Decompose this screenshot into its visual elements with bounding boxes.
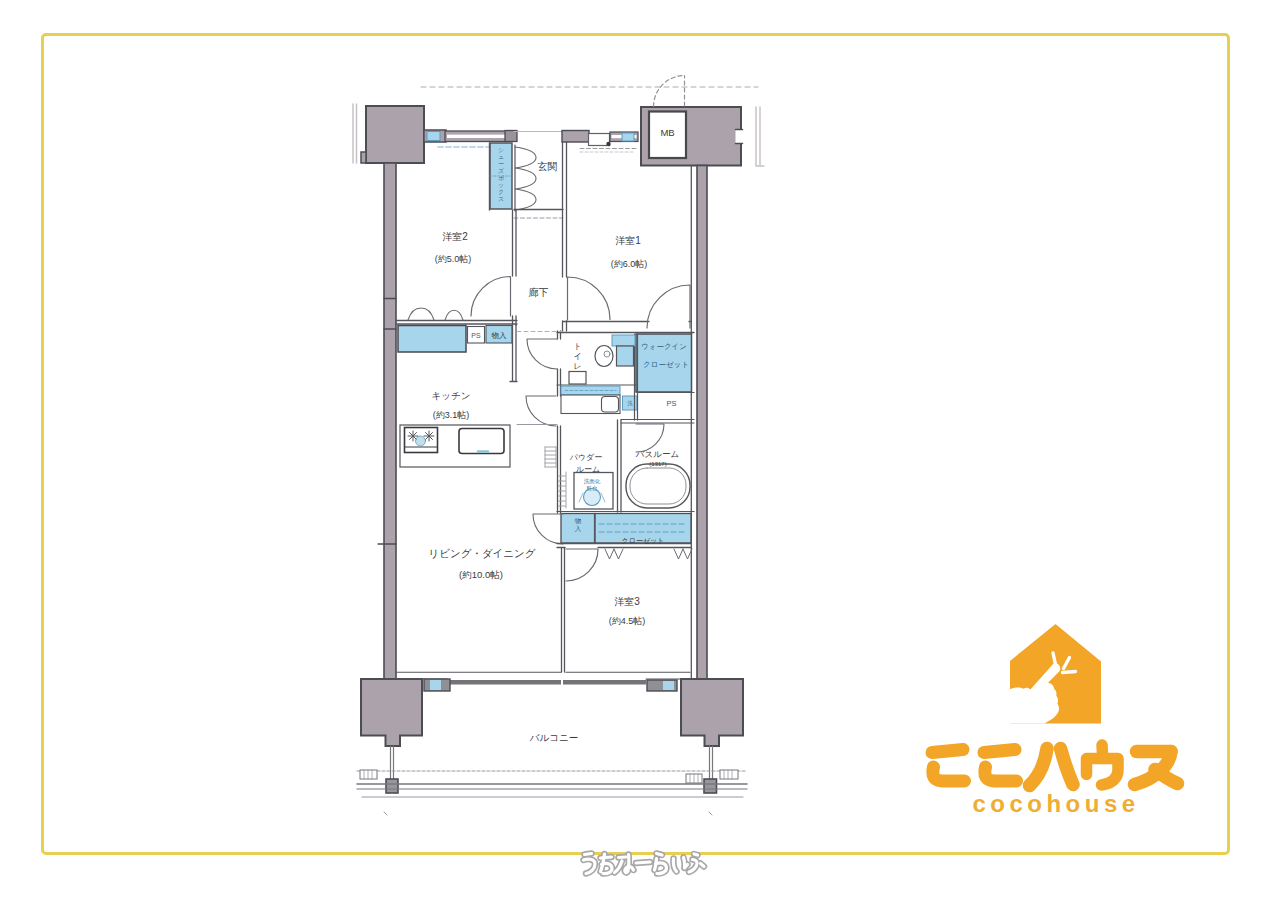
svg-text:物: 物 (575, 517, 582, 525)
svg-text:バルコニー: バルコニー (529, 732, 578, 743)
svg-text:キッチン: キッチン (432, 390, 471, 401)
svg-text:レ: レ (573, 362, 581, 371)
svg-text:イ: イ (573, 352, 581, 361)
svg-text:物入: 物入 (492, 331, 508, 340)
svg-text:玄関: 玄関 (538, 161, 558, 172)
svg-text:パウダー: パウダー (569, 453, 603, 462)
svg-text:ッ: ッ (498, 182, 504, 188)
svg-text:ー: ー (498, 161, 504, 167)
svg-text:(約10.0帖): (約10.0帖) (459, 569, 503, 580)
svg-text:(約4.5帖): (約4.5帖) (609, 616, 646, 626)
svg-text:PS: PS (471, 332, 481, 339)
svg-text:洋室2: 洋室2 (442, 231, 468, 242)
svg-text:ュ: ュ (498, 154, 504, 160)
svg-text:入: 入 (575, 525, 582, 532)
svg-text:(約5.0帖): (約5.0帖) (435, 254, 472, 264)
svg-text:ズ: ズ (498, 168, 505, 174)
svg-text:クローゼット: クローゼット (622, 537, 665, 544)
svg-text:バスルーム: バスルーム (635, 449, 679, 459)
svg-text:ウォークイン: ウォークイン (641, 342, 687, 351)
svg-text:シ: シ (498, 147, 504, 153)
svg-text:(約6.0帖): (約6.0帖) (611, 259, 648, 269)
svg-text:洗面化: 洗面化 (584, 478, 601, 485)
svg-text:ボ: ボ (498, 175, 504, 181)
svg-text:ルーム: ルーム (576, 465, 600, 474)
svg-text:ス: ス (498, 196, 504, 202)
svg-text:MB: MB (660, 127, 674, 138)
svg-text:(1317): (1317) (649, 461, 666, 467)
svg-text:クローゼット: クローゼット (643, 360, 689, 369)
svg-text:cocohouse: cocohouse (972, 790, 1139, 817)
svg-text:廊下: 廊下 (529, 287, 549, 298)
svg-text:リビング・ダイニング: リビング・ダイニング (428, 547, 535, 559)
svg-text:PS: PS (666, 399, 676, 408)
svg-text:洋室3: 洋室3 (614, 596, 640, 607)
svg-text:洗: 洗 (627, 400, 633, 407)
svg-text:ト: ト (573, 342, 581, 351)
svg-text:粧台: 粧台 (587, 485, 598, 491)
svg-text:洋室1: 洋室1 (615, 235, 641, 246)
svg-text:ク: ク (498, 189, 504, 195)
svg-text:(約3.1帖): (約3.1帖) (433, 410, 470, 420)
